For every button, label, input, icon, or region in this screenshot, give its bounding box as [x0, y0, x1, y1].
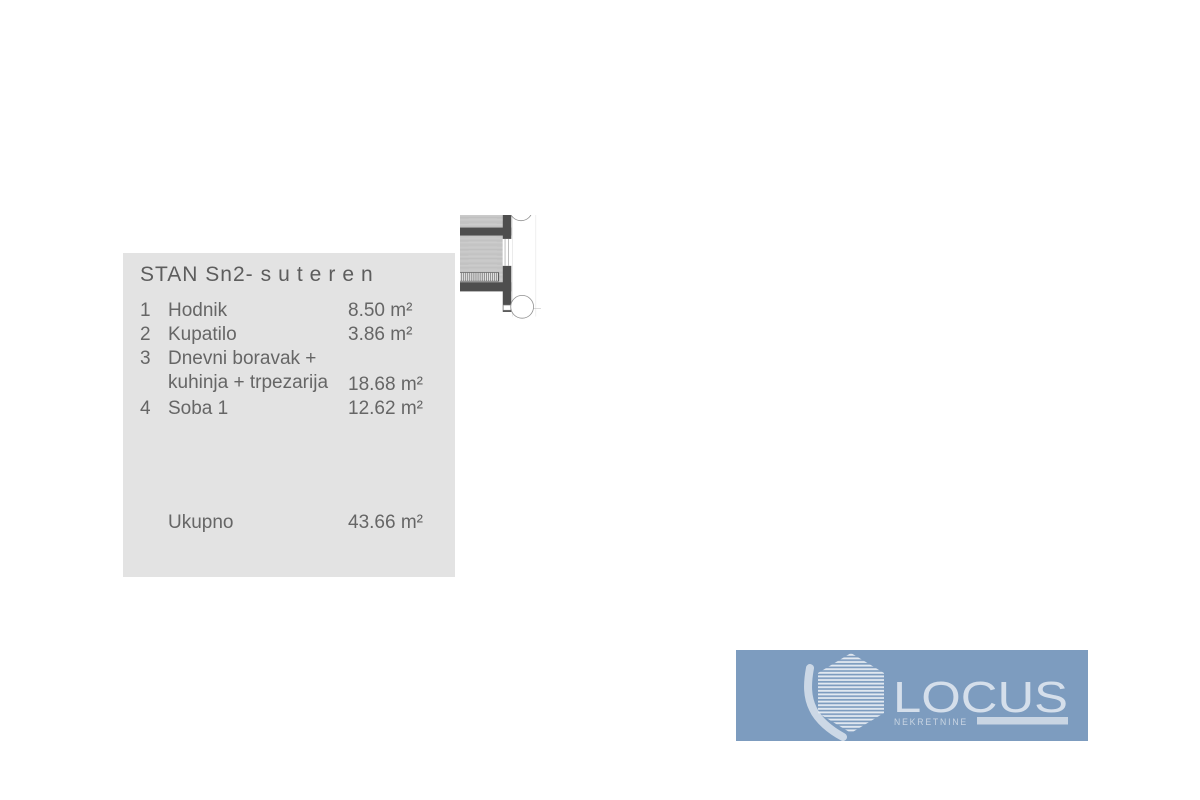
room-2-number: 2: [140, 323, 151, 347]
room-1-number: 1: [140, 299, 151, 323]
logo-underline-bar: [977, 717, 1068, 725]
logo-hexagon-icon: [818, 653, 884, 733]
room-4-area: 12.62 m²: [348, 397, 423, 421]
column-bottom: [511, 295, 534, 318]
room-2-area: 3.86 m²: [348, 323, 412, 347]
room-1-name: Hodnik: [168, 299, 227, 323]
bedroom-radiator: [460, 273, 499, 282]
room-3-name-line1: Dnevni boravak +: [168, 347, 316, 371]
room-2-name: Kupatilo: [168, 323, 237, 347]
locus-logo-mark: [808, 653, 884, 737]
total-area: 43.66 m²: [348, 511, 423, 535]
plan-title: STAN Sn2-suteren: [140, 263, 380, 287]
total-label: Ukupno: [168, 511, 234, 535]
room-3-name-line2: kuhinja + trpezarija: [168, 371, 328, 395]
floor-plan-drawing: 1 2 3 4: [460, 215, 1070, 585]
plan-title-prefix: STAN Sn2-: [140, 263, 254, 286]
column-middle: [510, 215, 533, 221]
floor-plan: 1 2 3 4: [460, 215, 1070, 585]
logo-tagline-text: NEKRETNINE: [894, 717, 968, 728]
room-4-name: Soba 1: [168, 397, 228, 421]
room-3-area: 18.68 m²: [348, 373, 423, 397]
facade-columns: [510, 215, 535, 318]
logo: LOCUS NEKRETNINE: [736, 650, 1088, 741]
room-1-area: 8.50 m²: [348, 299, 412, 323]
logo-brand-text: LOCUS: [893, 673, 1068, 722]
room-3-number: 3: [140, 347, 151, 371]
window-2: [503, 239, 512, 266]
legend-panel: STAN Sn2-suteren 1 Hodnik 8.50 m² 2 Kupa…: [123, 253, 455, 577]
plan-title-suffix: suteren: [261, 263, 380, 286]
room-4-number: 4: [140, 397, 151, 421]
